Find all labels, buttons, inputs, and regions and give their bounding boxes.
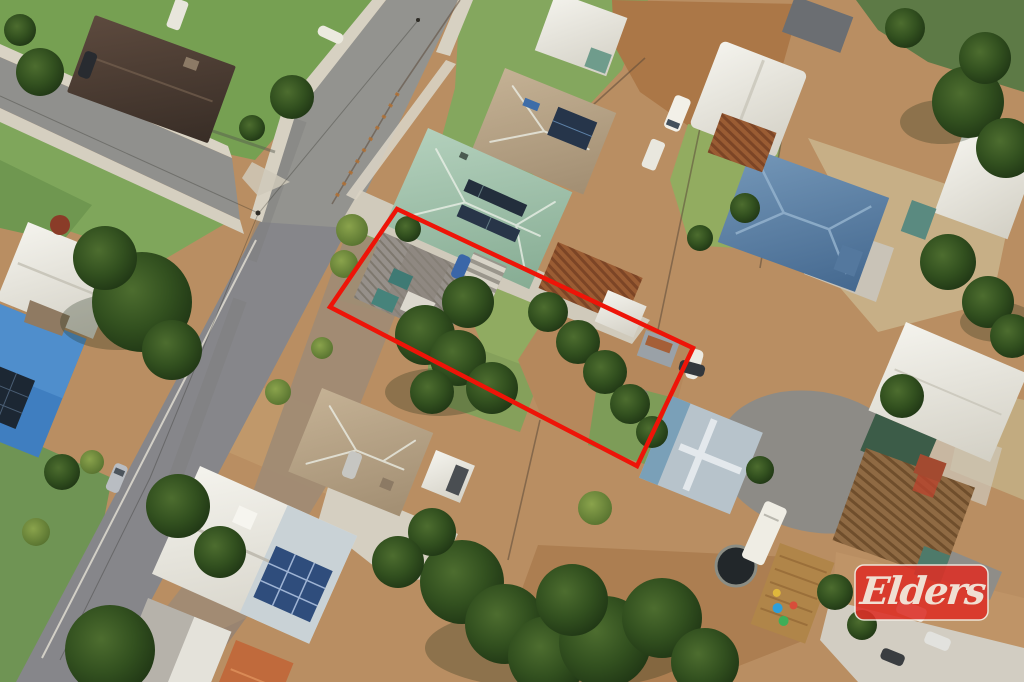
tree — [746, 456, 774, 484]
hedge-tree — [610, 384, 650, 424]
power-pole — [416, 18, 420, 22]
tree — [536, 564, 608, 636]
hedge-tree — [528, 292, 568, 332]
tree — [959, 32, 1011, 84]
palm-tree — [578, 491, 612, 525]
tree — [372, 536, 424, 588]
tree — [142, 320, 202, 380]
tree — [146, 474, 210, 538]
elders-logo: Elders — [855, 565, 988, 620]
tree — [920, 234, 976, 290]
verge-shrub — [336, 214, 368, 246]
lawn-tree-small — [687, 225, 713, 251]
tree — [880, 374, 924, 418]
lawn-tree-small — [730, 193, 760, 223]
tree — [466, 362, 518, 414]
palm-tree — [311, 337, 333, 359]
palm-tree — [22, 518, 50, 546]
palm-tree — [265, 379, 291, 405]
tree — [410, 370, 454, 414]
aerial-photo: Elders — [0, 0, 1024, 682]
aerial-photo-stage: Elders — [0, 0, 1024, 682]
power-pole — [256, 211, 261, 216]
tree — [885, 8, 925, 48]
red-bush — [50, 215, 70, 235]
tree — [44, 454, 80, 490]
tree — [270, 75, 314, 119]
elders-logo-text: Elders — [857, 568, 988, 613]
tree — [239, 115, 265, 141]
palm-tree — [80, 450, 104, 474]
tree — [16, 48, 64, 96]
tree — [817, 574, 853, 610]
tree — [194, 526, 246, 578]
tree — [73, 226, 137, 290]
tree — [4, 14, 36, 46]
